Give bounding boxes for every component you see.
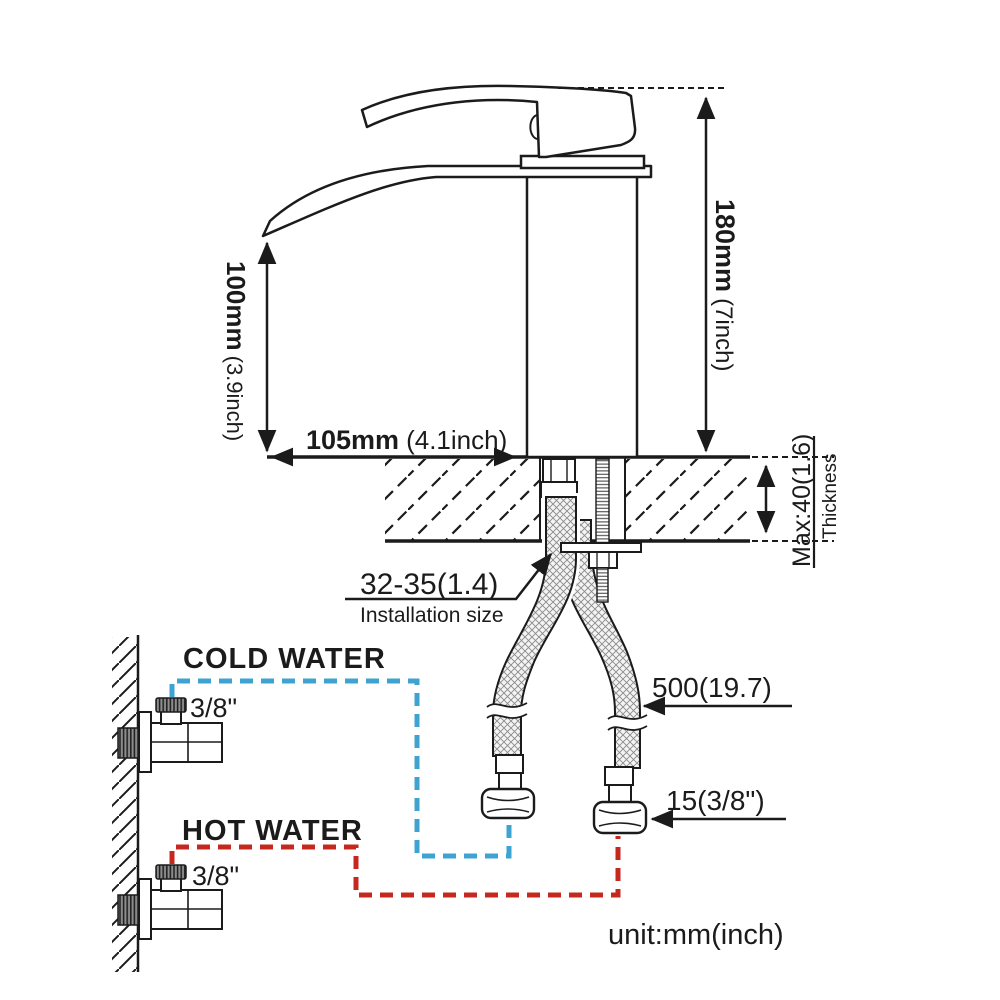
spout-reach-label: 105mm(4.1inch): [306, 425, 507, 455]
installation-size-caption: Installation size: [360, 604, 504, 627]
cold-hose-neck: [499, 773, 521, 790]
installation-size-value: 32-35(1.4): [360, 568, 498, 601]
max-thickness-label: Max:40(1.6): [788, 434, 816, 567]
hose-break: [608, 720, 647, 724]
hose-break: [487, 708, 527, 712]
hot-valve-inlet: [118, 895, 140, 925]
faucet-installation-diagram: 180mm(7inch) 100mm(3.9inch) 105mm(4.1inc…: [0, 0, 1000, 1000]
hot-valve-stem: [161, 878, 181, 891]
countertop-hatch-left: [385, 459, 540, 540]
mounting-nut: [589, 552, 617, 568]
cold-water-label: COLD WATER: [183, 643, 386, 675]
faucet-column: [527, 176, 637, 457]
hot-valve-size-label: 3/8": [192, 861, 239, 891]
threaded-stud-lower: [597, 568, 608, 602]
cold-hose-ferrule: [496, 755, 523, 773]
threaded-stud-upper: [596, 459, 609, 543]
hot-hose-nut: [594, 802, 646, 833]
connector-size-label: 15(3/8"): [666, 785, 765, 816]
cold-valve-inlet: [118, 728, 140, 758]
faucet-handle: [362, 86, 635, 157]
spout-height-label: 100mm(3.9inch): [221, 261, 251, 441]
hot-hose-ferrule: [605, 767, 633, 785]
mounting-washer: [561, 543, 641, 552]
cold-valve-size-label: 3/8": [190, 693, 237, 723]
hose-length-label: 500(19.7): [652, 672, 772, 703]
hot-water-label: HOT WATER: [182, 815, 363, 847]
faucet: [263, 86, 651, 457]
cold-valve-escutcheon: [139, 712, 151, 772]
cold-valve-stem: [161, 711, 181, 724]
hot-valve-escutcheon: [139, 879, 151, 939]
hot-hose-neck: [609, 785, 631, 803]
overall-height-label: 180mm(7inch): [710, 199, 740, 371]
cold-hose-nut: [482, 789, 534, 818]
cold-valve-knob: [156, 698, 186, 712]
hot-valve-knob: [156, 865, 186, 879]
diagram-svg: 180mm(7inch) 100mm(3.9inch) 105mm(4.1inc…: [0, 0, 1000, 1000]
unit-note: unit:mm(inch): [608, 919, 784, 951]
countertop-hatch-right: [625, 459, 748, 540]
hose-hex-fitting: [543, 459, 575, 482]
thickness-caption: Thickness: [820, 453, 841, 539]
